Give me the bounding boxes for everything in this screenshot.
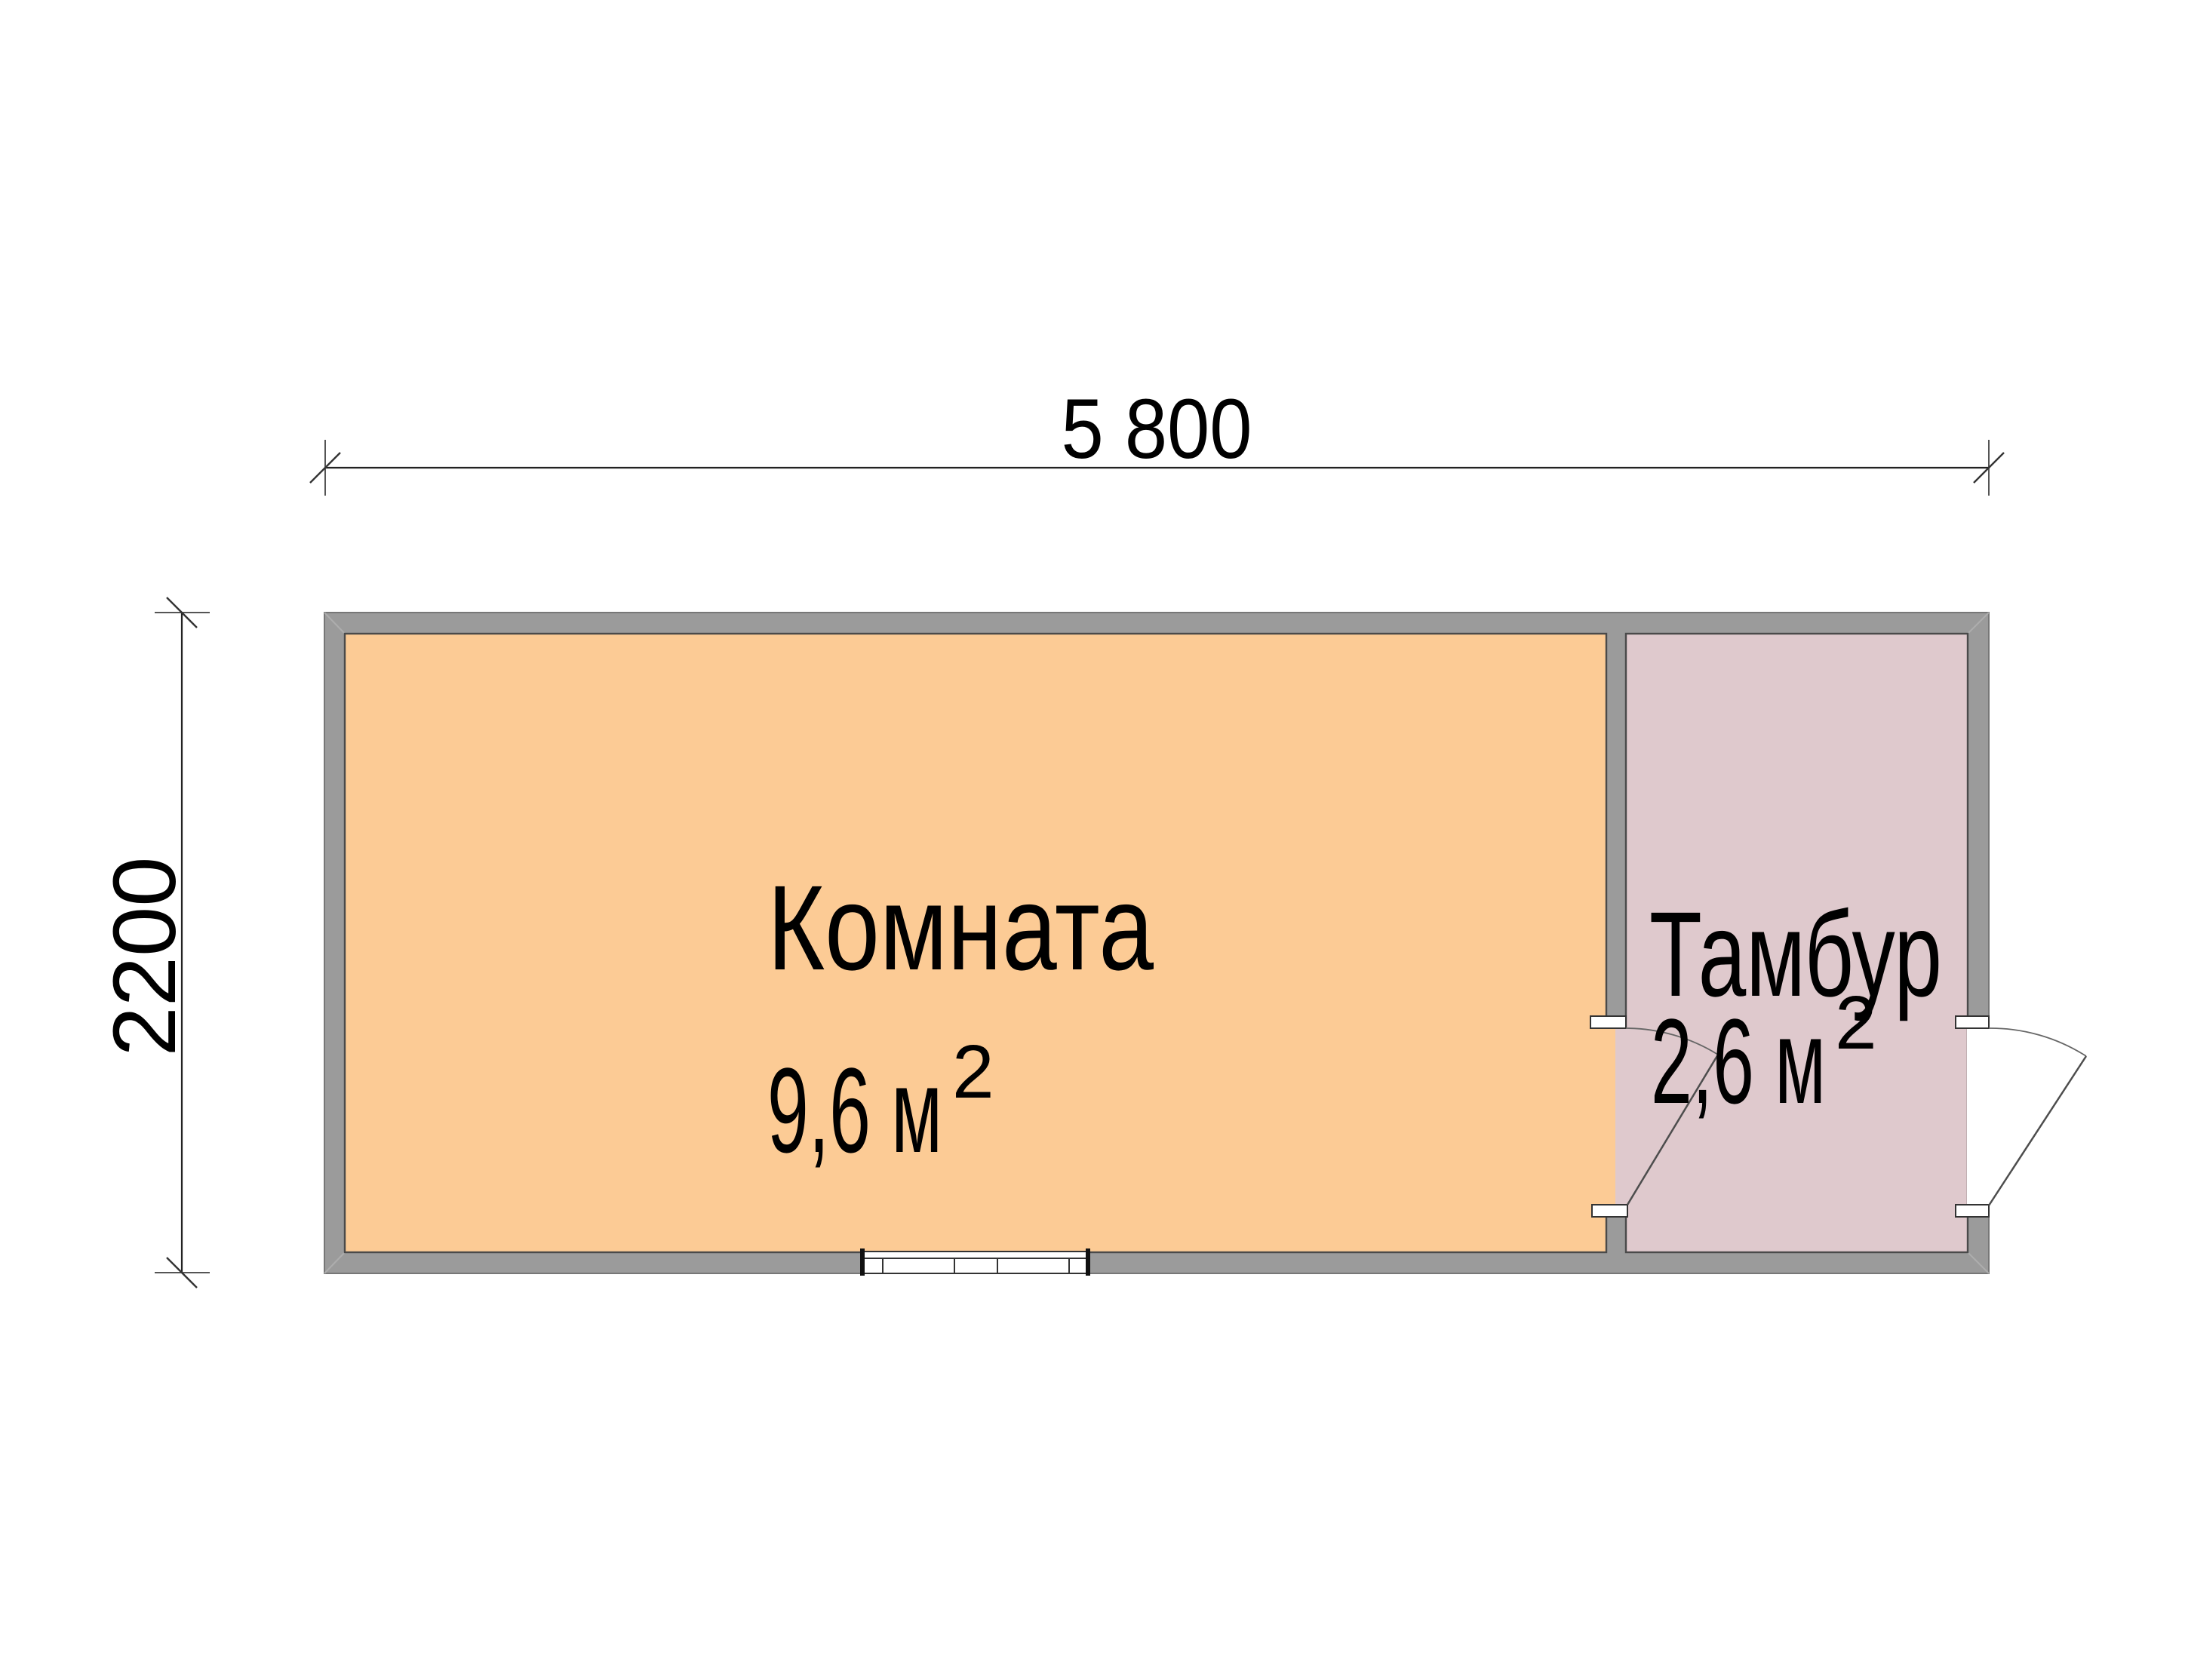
exterior-door-swing-arc xyxy=(1989,1028,2086,1056)
exterior-door xyxy=(1956,1016,2086,1217)
window xyxy=(862,1248,1089,1276)
interior-door-threshold-room-side xyxy=(1604,1027,1617,1205)
exterior-door-opening xyxy=(1967,1027,1991,1206)
exterior-door-jamb-bottom xyxy=(1956,1205,1989,1217)
interior-door-jamb-top xyxy=(1590,1016,1626,1028)
room-tambur-area: 2,6 м xyxy=(1651,994,1826,1129)
dimension-width-value: 5 800 xyxy=(1062,382,1252,476)
dimension-depth: 2200 xyxy=(95,597,210,1288)
dimension-width: 5 800 xyxy=(310,382,2004,496)
room-komnata-area: 9,6 м xyxy=(767,1043,942,1178)
room-komnata-name: Комната xyxy=(767,860,1154,995)
interior-door-jamb-bottom xyxy=(1592,1205,1627,1217)
floor-plan-page: 5 800 2200 Комната 9,6 м 2 Тамбур 2,6 м … xyxy=(0,0,2185,1680)
exterior-door-jamb-top xyxy=(1956,1016,1989,1028)
room-komnata-area-superscript: 2 xyxy=(952,1030,994,1114)
exterior-door-leaf xyxy=(1989,1056,2086,1205)
interior-door-threshold-vestibule-side xyxy=(1615,1027,1627,1205)
floor-plan-drawing: 5 800 2200 Комната 9,6 м 2 Тамбур 2,6 м … xyxy=(0,0,2185,1680)
window-frame xyxy=(862,1252,1089,1273)
dimension-depth-value: 2200 xyxy=(95,857,195,1057)
room-tambur-area-superscript: 2 xyxy=(1835,981,1877,1065)
